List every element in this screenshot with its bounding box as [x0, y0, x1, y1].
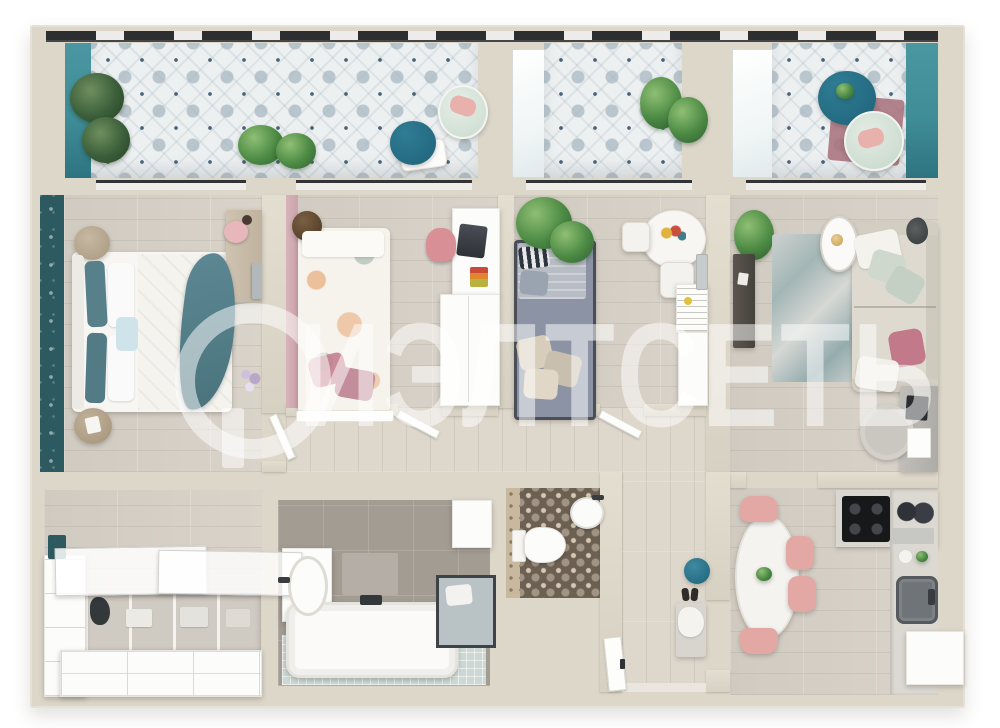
- cup: [898, 549, 913, 564]
- table-centerpiece: [756, 567, 772, 581]
- dining-chair: [786, 536, 814, 570]
- sink: [288, 556, 328, 616]
- small-plant: [916, 551, 928, 562]
- chair: [622, 222, 650, 252]
- plant: [82, 117, 130, 163]
- wall: [706, 195, 730, 472]
- hanging-coat: [90, 597, 110, 625]
- master-wallpaper-wall: [40, 195, 64, 472]
- wardrobe-seam: [468, 296, 469, 402]
- appliances: [896, 499, 934, 527]
- desk-chair: [426, 228, 456, 262]
- plant: [276, 133, 316, 169]
- window: [746, 180, 926, 190]
- bath-mat: [342, 553, 398, 595]
- wall: [706, 670, 730, 692]
- plant: [734, 210, 774, 260]
- balcony-glass-screen: [732, 49, 774, 178]
- desk-monitor: [905, 395, 929, 420]
- tv-console: [733, 254, 755, 348]
- table-plant: [836, 83, 854, 99]
- bathroom-door: [452, 500, 492, 548]
- sofa-seam: [854, 306, 936, 308]
- shoe: [690, 588, 698, 602]
- bed-footboard: [296, 410, 394, 422]
- folded-clothes: [180, 607, 208, 627]
- faucet: [278, 577, 290, 583]
- floorplan-render: ИЭЛТСЕТЬ: [0, 0, 1000, 728]
- faucet: [592, 495, 604, 500]
- pillow: [302, 231, 384, 257]
- plant: [70, 73, 124, 123]
- pillow: [519, 270, 549, 296]
- fridge: [906, 631, 964, 685]
- toilet: [524, 527, 566, 563]
- books: [470, 267, 488, 287]
- folded-clothes: [126, 609, 152, 627]
- balcony-glass-screen: [512, 49, 546, 178]
- door-handle: [620, 659, 625, 669]
- bed-headboard: [72, 255, 84, 409]
- wall-frame: [696, 254, 708, 290]
- wardrobe: [678, 332, 708, 406]
- wall: [818, 472, 938, 488]
- wall: [262, 461, 286, 472]
- wall: [498, 195, 514, 408]
- sliding-glass-door: [158, 550, 303, 597]
- balcony-glazing: [46, 31, 938, 42]
- wardrobe: [440, 294, 500, 406]
- counter-tray: [892, 528, 934, 544]
- crib-toy: [684, 297, 692, 305]
- pillow: [523, 368, 559, 400]
- dining-chair: [788, 576, 816, 612]
- faucet: [928, 589, 935, 605]
- vanity-decor: [242, 215, 252, 225]
- pillow: [334, 366, 377, 402]
- window: [96, 180, 246, 190]
- magazine: [84, 416, 101, 435]
- plant: [668, 97, 708, 143]
- pillow: [116, 317, 138, 351]
- teal-pouf: [684, 558, 710, 584]
- dining-chair: [740, 628, 778, 654]
- towel: [445, 584, 473, 607]
- wall: [706, 472, 730, 600]
- table-lamp: [831, 234, 843, 246]
- window: [526, 180, 692, 190]
- window: [296, 180, 472, 190]
- drawer-unit: [60, 650, 262, 697]
- crib: [676, 284, 708, 332]
- plant: [550, 221, 594, 263]
- dining-chair: [740, 496, 778, 522]
- balcony-teal-wall-right: [906, 43, 938, 178]
- console-decor: [737, 272, 749, 285]
- laptop: [456, 223, 488, 258]
- pillow: [854, 355, 900, 393]
- flowers: [238, 366, 264, 394]
- cooktop: [842, 496, 890, 542]
- desk-paper: [907, 428, 931, 458]
- wall: [262, 195, 286, 413]
- clothes-pile: [678, 607, 704, 637]
- entry-threshold: [622, 683, 706, 692]
- tub-faucet: [360, 595, 382, 605]
- wall-tv: [252, 263, 262, 299]
- corner-sink: [570, 497, 604, 529]
- apartment-plan: [30, 25, 965, 708]
- toys: [660, 223, 686, 243]
- pillow: [85, 333, 107, 404]
- round-tea-table: [390, 121, 436, 165]
- wall: [730, 472, 746, 488]
- folded-clothes: [226, 609, 250, 627]
- pillow: [84, 261, 107, 328]
